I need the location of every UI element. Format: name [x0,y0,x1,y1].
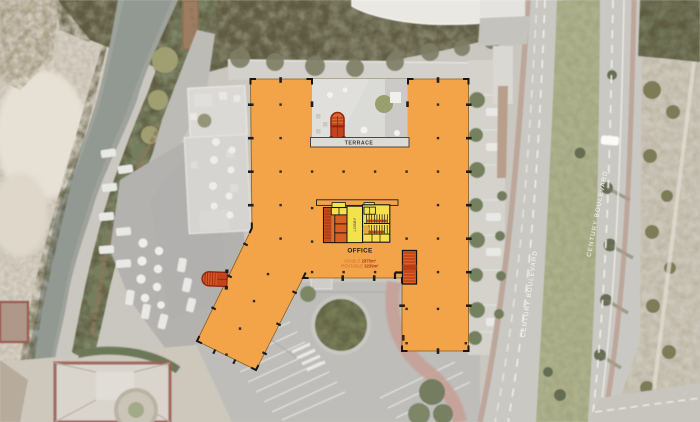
svg-text:OFFICE: OFFICE [347,248,373,255]
svg-text:LOBBY: LOBBY [352,217,357,231]
svg-text:RENTABLE 3239m²: RENTABLE 3239m² [341,264,379,269]
svg-text:TERRACE: TERRACE [345,140,374,146]
